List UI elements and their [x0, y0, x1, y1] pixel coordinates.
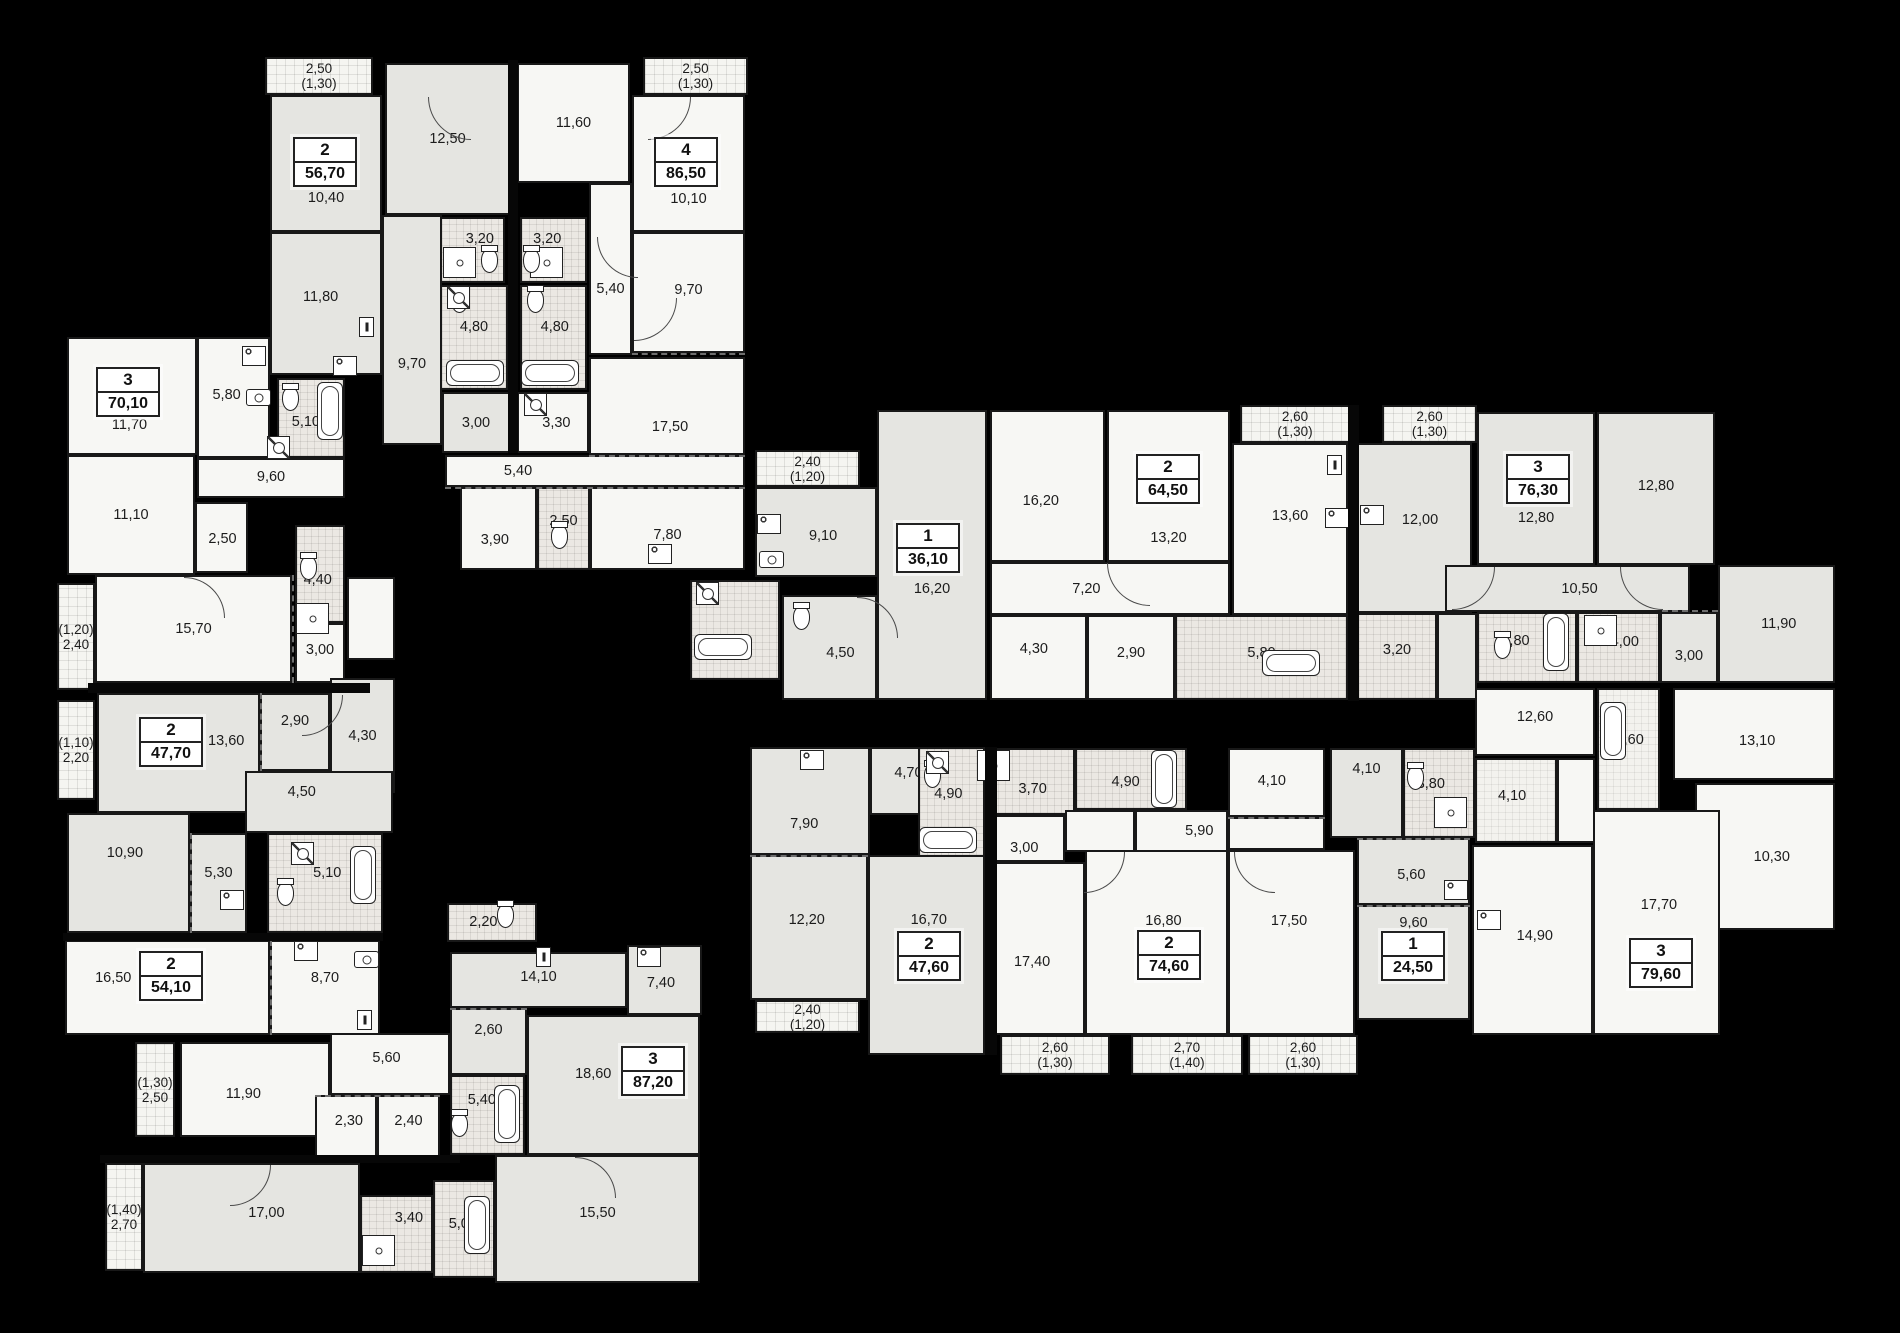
dashed-line [445, 487, 745, 489]
room-area-label: 2,60 [474, 1022, 502, 1038]
balcony: 2,60 (1,30) [1000, 1035, 1110, 1075]
room-area-label: 11,60 [556, 115, 591, 131]
dashed-line [589, 455, 745, 457]
room: 4,50 [245, 771, 393, 833]
dashed-line [260, 693, 262, 771]
bathtub-icon [1151, 750, 1177, 808]
bathtub-icon [494, 1085, 520, 1143]
room-area-label: 17,00 [248, 1205, 284, 1221]
room: 11,90 [1718, 565, 1835, 683]
room-area-label: 4,10 [1258, 773, 1286, 789]
apartment-rooms-count: 1 [1383, 933, 1443, 957]
dashed-line [450, 1008, 527, 1010]
room-area-label: 4,90 [1111, 774, 1139, 790]
room-area-label: 4,90 [934, 785, 962, 801]
room-area-label: 18,60 [575, 1066, 611, 1082]
room-area-label: 5,80 [212, 387, 240, 403]
toilet-icon [1494, 635, 1511, 659]
room-area-label: 11,90 [1761, 616, 1796, 632]
apartment-badge: 254,10 [139, 951, 203, 1001]
bathtub-icon [919, 827, 977, 853]
apartment-badge: 486,50 [654, 137, 718, 187]
room-area-label: 12,80 [1638, 477, 1674, 493]
room: 4,10 [1475, 758, 1557, 843]
apartment-badge: 370,10 [96, 367, 160, 417]
room [1557, 758, 1595, 843]
room-area-label: 10,50 [1561, 580, 1597, 596]
room-area-label: 4,10 [1498, 788, 1526, 804]
balcony-area-label: (1,20) 2,40 [58, 621, 93, 651]
toilet-icon [481, 249, 498, 273]
room-area-label: 4,10 [1352, 761, 1380, 777]
room-area-label: 11,70 [112, 416, 147, 432]
room-area-label: 7,90 [790, 816, 818, 832]
room-area-label: 5,10 [292, 414, 320, 430]
room-area-label: 3,70 [1019, 781, 1047, 797]
room-area-label: 5,40 [504, 463, 532, 479]
washing-machine-icon [926, 751, 949, 774]
room: 2,30 [315, 1095, 377, 1157]
room-area-label: 10,40 [308, 190, 344, 206]
room: 4,30 [990, 615, 1087, 700]
room-area-label: 11,80 [303, 288, 338, 304]
room-area-label: 5,40 [596, 281, 624, 297]
room: 3,00 [1660, 612, 1718, 683]
shower-icon [362, 1235, 395, 1266]
balcony: (1,30) 2,50 [135, 1042, 175, 1137]
room-area-label: 15,70 [175, 621, 211, 637]
room: 16,20 [990, 410, 1105, 562]
room-area-label: 14,10 [520, 969, 556, 985]
room-area-label: 4,30 [1020, 641, 1048, 657]
dashed-line [1357, 838, 1470, 840]
room-area-label: 10,90 [107, 845, 143, 861]
room-area-label: 13,10 [1739, 733, 1775, 749]
room-area-label: 11,10 [113, 507, 148, 523]
room-area-label: 4,80 [541, 319, 569, 335]
apartment-rooms-count: 2 [899, 933, 959, 957]
toilet-icon [527, 289, 544, 313]
room-area-label: 10,30 [1754, 848, 1790, 864]
washing-machine-icon [447, 286, 470, 309]
toilet-icon [451, 1113, 468, 1137]
boiler-icon [536, 947, 551, 967]
boiler-icon [359, 317, 374, 337]
balcony: 2,70 (1,40) [1131, 1035, 1243, 1075]
room-area-label: 15,50 [579, 1205, 615, 1221]
stove-icon [800, 750, 824, 770]
room: 2,20 [447, 903, 537, 942]
room-area-label: 3,20 [1383, 642, 1411, 658]
room-area-label: 10,10 [670, 191, 706, 207]
stove-icon [648, 544, 672, 564]
apartment-total-area: 47,60 [899, 957, 959, 979]
toilet-icon [551, 525, 568, 549]
room: 4,10 [1330, 748, 1403, 838]
apartment-badge: 264,50 [1136, 454, 1200, 504]
apartment-badge: 136,10 [896, 523, 960, 573]
room-area-label: 9,70 [398, 356, 426, 372]
balcony: (1,40) 2,70 [105, 1163, 143, 1271]
dashed-line [315, 1095, 440, 1097]
room-area-label: 7,80 [653, 527, 681, 543]
balcony-area-label: 2,50 (1,30) [293, 61, 345, 91]
room-area-label: 17,50 [652, 419, 688, 435]
apartment-rooms-count: 3 [98, 369, 158, 393]
room-area-label: 16,20 [914, 581, 950, 597]
shower-icon [443, 247, 476, 278]
stove-icon [637, 947, 661, 967]
room-area-label: 17,70 [1641, 897, 1677, 913]
apartment-badge: 247,70 [139, 717, 203, 767]
apartment-rooms-count: 2 [1139, 932, 1199, 956]
apartment-total-area: 54,10 [141, 977, 201, 999]
apartment-total-area: 87,20 [623, 1072, 683, 1094]
toilet-icon [277, 882, 294, 906]
room [1437, 613, 1477, 700]
room-area-label: 5,60 [1397, 867, 1425, 883]
room: 2,50 [195, 502, 248, 573]
toilet-icon [497, 904, 514, 928]
stove-icon [1477, 910, 1501, 930]
room-area-label: 9,60 [1399, 914, 1427, 930]
room-area-label: 13,20 [1150, 530, 1186, 546]
room-area-label: 9,60 [257, 469, 285, 485]
apartment-badge: 247,60 [897, 931, 961, 981]
room-area-label: 2,40 [394, 1113, 422, 1129]
balcony: 2,60 (1,30) [1240, 405, 1350, 443]
room-area-label: 16,80 [1145, 913, 1181, 929]
balcony: (1,10) 2,20 [57, 700, 95, 800]
balcony: (1,20) 2,40 [57, 583, 95, 690]
shower-icon [296, 603, 329, 634]
room: 12,20 [750, 855, 868, 1000]
wall [1348, 405, 1359, 701]
room-area-label: 3,00 [306, 642, 334, 658]
room: 9,60 [197, 458, 345, 498]
bathtub-icon [694, 634, 752, 660]
room: 11,80 [270, 232, 382, 375]
apartment-rooms-count: 2 [141, 719, 201, 743]
room-area-label: 5,10 [313, 865, 341, 881]
dashed-line [1228, 817, 1325, 819]
apartment-total-area: 56,70 [295, 163, 355, 185]
stove-icon [294, 941, 318, 961]
balcony: 2,60 (1,30) [1382, 405, 1477, 443]
room-area-label: 11,90 [226, 1086, 261, 1102]
apartment-total-area: 86,50 [656, 163, 716, 185]
room-area-label: 3,00 [1675, 647, 1703, 663]
room: 5,60 [330, 1033, 450, 1095]
washing-machine-icon [291, 842, 314, 865]
room-area-label: 13,60 [208, 733, 244, 749]
room: 2,40 [377, 1095, 440, 1157]
room-area-label: 3,00 [1010, 840, 1038, 856]
room: 12,60 [1475, 688, 1595, 756]
balcony-area-label: 2,60 (1,30) [1277, 1040, 1330, 1070]
balcony-area-label: (1,10) 2,20 [58, 735, 93, 765]
balcony-area-label: 2,40 (1,20) [782, 1001, 833, 1031]
balcony: 2,40 (1,20) [755, 450, 860, 487]
room-area-label: 2,20 [469, 914, 497, 930]
wall [985, 747, 997, 1055]
room: 5,30 [190, 833, 247, 933]
room-area-label: 4,50 [826, 644, 854, 660]
balcony-area-label: 2,40 (1,20) [782, 453, 833, 483]
room: 3,00 [442, 392, 510, 453]
room-area-label: 3,30 [542, 414, 570, 430]
bathtub-icon [1262, 650, 1320, 676]
shower-icon [1584, 615, 1617, 646]
room: 17,50 [589, 357, 745, 455]
room: 10,90 [67, 813, 190, 933]
room-area-label: 12,60 [1517, 709, 1553, 725]
balcony-area-label: 2,70 (1,40) [1160, 1040, 1214, 1070]
room-area-label: 3,40 [395, 1210, 423, 1226]
apartment-rooms-count: 2 [295, 139, 355, 163]
room-area-label: 4,50 [288, 783, 316, 799]
room: 3,90 [460, 487, 537, 570]
room: 12,80 [1597, 412, 1715, 565]
sink-icon [759, 551, 784, 568]
room-area-label: 12,00 [1402, 512, 1438, 528]
balcony: 2,60 (1,30) [1248, 1035, 1358, 1075]
stove-icon [333, 356, 357, 376]
dashed-line [1357, 905, 1470, 907]
bathtub-icon [1600, 702, 1626, 760]
room-area-label: 5,60 [372, 1050, 400, 1066]
apartment-rooms-count: 3 [623, 1048, 683, 1072]
sink-icon [246, 389, 271, 406]
room-area-label: 7,40 [647, 975, 675, 991]
toilet-icon [1407, 766, 1424, 790]
room [1228, 817, 1325, 850]
stove-icon [242, 346, 266, 366]
apartment-rooms-count: 3 [1508, 456, 1568, 480]
room-area-label: 2,50 [208, 531, 236, 547]
room: 2,60 [450, 1008, 527, 1075]
room-area-label: 4,30 [348, 727, 376, 743]
toilet-icon [523, 249, 540, 273]
washing-machine-icon [696, 582, 719, 605]
balcony-area-label: (1,40) 2,70 [106, 1202, 141, 1232]
apartment-total-area: 47,70 [141, 743, 201, 765]
floor-plan-canvas: 2,50 (1,30)10,4011,8012,509,703,204,803,… [0, 0, 1900, 1333]
room: 4,10 [1228, 748, 1325, 817]
room: 14,90 [1472, 845, 1593, 1035]
balcony: 2,50 (1,30) [265, 57, 373, 95]
room-area-label: 16,20 [1023, 493, 1059, 509]
boiler-icon [357, 1010, 372, 1030]
room: 11,60 [517, 63, 630, 183]
room-area-label: 8,70 [311, 970, 339, 986]
room: 3,20 [1357, 613, 1437, 700]
bathtub-icon [464, 1196, 490, 1254]
room: 17,70 [1593, 810, 1720, 1035]
apartment-rooms-count: 3 [1631, 940, 1691, 964]
toilet-icon [282, 387, 299, 411]
bathtub-icon [350, 846, 376, 904]
dashed-line [292, 575, 294, 683]
washing-machine-icon [267, 436, 290, 459]
room-area-label: 13,60 [1272, 507, 1308, 523]
room: 11,90 [180, 1042, 330, 1137]
room-area-label: 17,50 [1271, 913, 1307, 929]
toilet-icon [793, 606, 810, 630]
shower-icon [1434, 797, 1467, 828]
stove-icon [1325, 508, 1349, 528]
apartment-badge: 256,70 [293, 137, 357, 187]
wall [100, 1155, 460, 1163]
balcony-area-label: 2,60 (1,30) [1407, 409, 1453, 439]
balcony: 2,50 (1,30) [643, 57, 748, 95]
bathtub-icon [521, 360, 579, 386]
room-area-label: 9,70 [674, 282, 702, 298]
bathtub-icon [446, 360, 504, 386]
apartment-badge: 379,60 [1629, 938, 1693, 988]
balcony-area-label: 2,60 (1,30) [1269, 409, 1322, 439]
wall [63, 933, 383, 941]
room: 13,10 [1673, 688, 1835, 780]
apartment-total-area: 24,50 [1383, 957, 1443, 979]
apartment-badge: 274,60 [1137, 930, 1201, 980]
apartment-badge: 124,50 [1381, 931, 1445, 981]
room-area-label: 2,30 [335, 1113, 363, 1129]
dashed-line [632, 353, 745, 355]
room: 2,90 [1087, 615, 1175, 700]
room-area-label: 14,90 [1517, 928, 1553, 944]
room-area-label: 9,10 [809, 528, 837, 544]
balcony-area-label: 2,60 (1,30) [1029, 1040, 1082, 1070]
stove-icon [220, 890, 244, 910]
apartment-total-area: 64,50 [1138, 480, 1198, 502]
apartment-total-area: 79,60 [1631, 964, 1691, 986]
dashed-line [190, 833, 192, 933]
room-area-label: 2,90 [1117, 645, 1145, 661]
dashed-line [750, 855, 868, 857]
room: 9,70 [382, 215, 442, 445]
apartment-rooms-count: 2 [141, 953, 201, 977]
apartment-total-area: 36,10 [898, 549, 958, 571]
wall [508, 60, 518, 453]
room-area-label: 12,80 [1518, 510, 1554, 526]
stove-icon [1360, 505, 1384, 525]
room-area-label: 16,70 [911, 912, 947, 928]
room-area-label: 5,90 [1185, 823, 1213, 839]
sink-icon [354, 951, 379, 968]
room-area-label: 4,80 [460, 319, 488, 335]
room [1065, 810, 1135, 852]
boiler-icon [1327, 455, 1342, 475]
room-area-label: 16,50 [95, 970, 131, 986]
wall [88, 683, 370, 693]
room [347, 577, 395, 660]
apartment-badge: 376,30 [1506, 454, 1570, 504]
room: 5,90 [1135, 810, 1228, 852]
room-area-label: 17,40 [1014, 954, 1050, 970]
room-area-label: 7,20 [1072, 580, 1100, 596]
washing-machine-icon [524, 393, 547, 416]
room-area-label: 3,00 [462, 414, 490, 430]
bathtub-icon [317, 382, 343, 440]
room: 12,50 [385, 63, 510, 215]
bathtub-icon [1543, 613, 1569, 671]
apartment-total-area: 76,30 [1508, 480, 1568, 502]
apartment-rooms-count: 1 [898, 525, 958, 549]
apartment-total-area: 74,60 [1139, 956, 1199, 978]
room-area-label: 5,40 [468, 1092, 496, 1108]
balcony-area-label: 2,50 (1,30) [670, 61, 721, 91]
room-area-label: 12,20 [789, 912, 825, 928]
apartment-badge: 387,20 [621, 1046, 685, 1096]
balcony-area-label: (1,30) 2,50 [137, 1074, 172, 1104]
room-area-label: 3,90 [481, 532, 509, 548]
room: 11,10 [67, 455, 195, 575]
apartment-total-area: 70,10 [98, 393, 158, 415]
toilet-icon [300, 556, 317, 580]
apartment-rooms-count: 4 [656, 139, 716, 163]
room: 5,40 [445, 455, 745, 487]
stove-icon [1444, 880, 1468, 900]
apartment-rooms-count: 2 [1138, 456, 1198, 480]
room-area-label: 5,30 [204, 865, 232, 881]
balcony: 2,40 (1,20) [755, 1000, 860, 1033]
stove-icon [757, 514, 781, 534]
dashed-line [270, 940, 272, 1035]
dashed-line [1662, 610, 1718, 612]
